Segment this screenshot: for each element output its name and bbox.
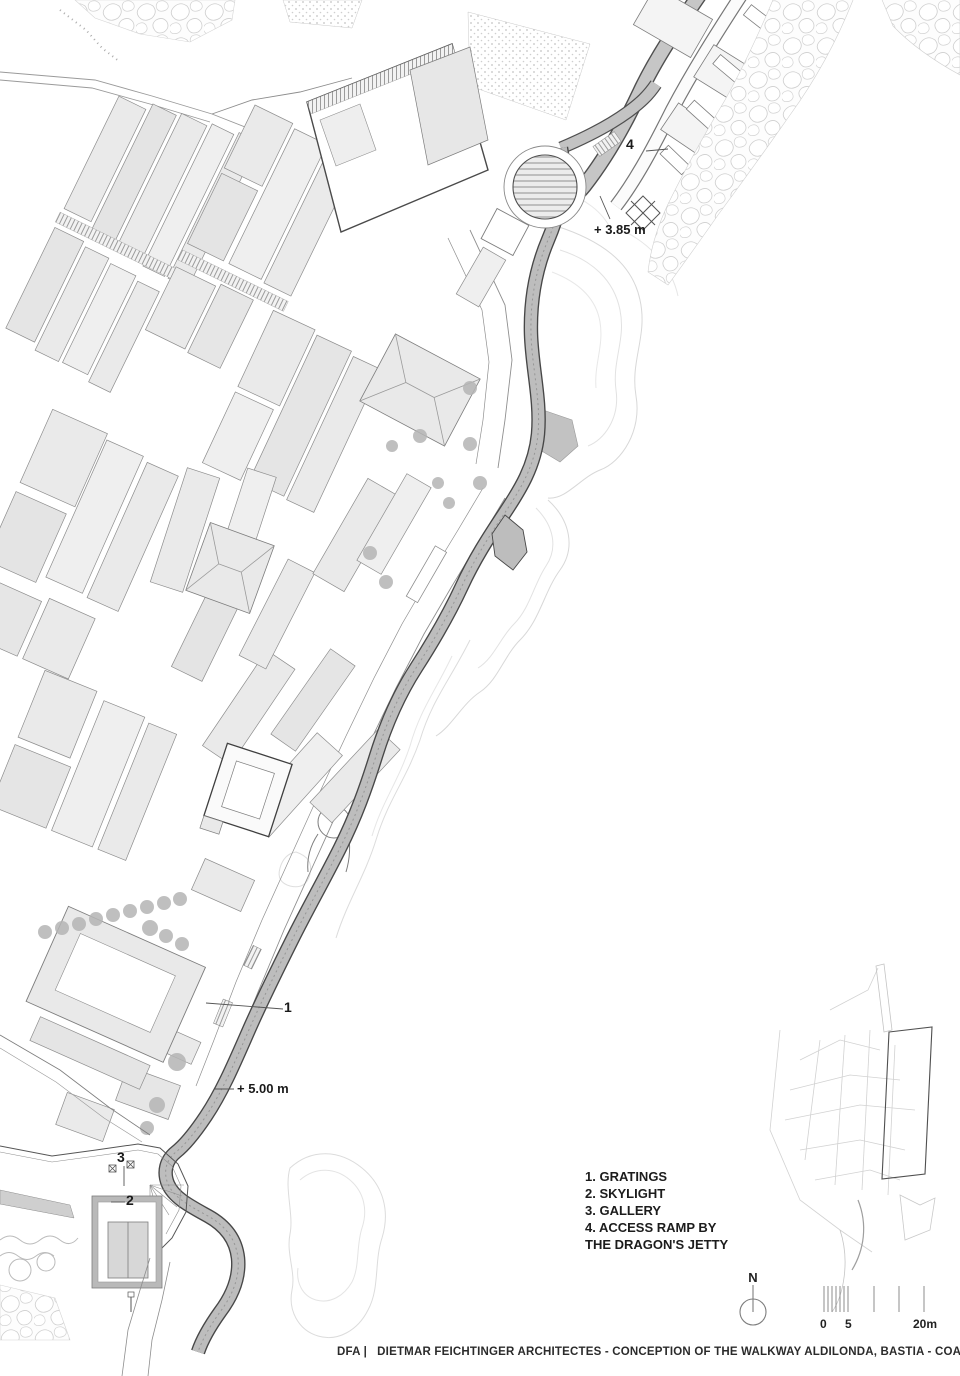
legend-item-access-ramp: 4. ACCESS RAMP BY THE DRAGON'S JETTY (585, 1219, 743, 1253)
gravel-patch-top (283, 0, 362, 28)
scale-label-20m: 20m (913, 1317, 937, 1331)
compass: N (731, 1270, 775, 1285)
marker-2: 2 (126, 1192, 134, 1208)
rock-texture-topleft (75, 0, 235, 42)
fort-square (200, 743, 292, 849)
roundabout (504, 146, 586, 228)
scale-label-0: 0 (820, 1317, 827, 1331)
gravel-patch-center (468, 12, 590, 120)
legend-item-gratings: 1. GRATINGS (585, 1168, 743, 1185)
legend-item-gallery: 3. GALLERY (585, 1202, 743, 1219)
legend-item-skylight: 2. SKYLIGHT (585, 1185, 743, 1202)
north-label: N (731, 1270, 775, 1285)
elevation-jetty-label: + 3.85 m (594, 222, 646, 237)
titleblock-text: DFA | DIETMAR FEICHTINGER ARCHITECTES - … (337, 1346, 960, 1358)
marker-3: 3 (117, 1149, 125, 1165)
plan-sheet: 4 + 3.85 m 1 + 5.00 m 3 2 1. GRATINGS 2.… (0, 0, 960, 1376)
site-plan-drawing (0, 0, 960, 1376)
north-arrow (740, 1285, 766, 1325)
grating-patch (213, 999, 232, 1027)
marker-4: 4 (626, 136, 634, 152)
scale-label-5: 5 (845, 1317, 852, 1331)
overview-inset-map (770, 964, 935, 1312)
plaza-complex (307, 44, 488, 232)
median-island (406, 546, 446, 603)
legend: 1. GRATINGS 2. SKYLIGHT 3. GALLERY 4. AC… (585, 1168, 743, 1253)
marker-1: 1 (284, 999, 292, 1015)
elevation-walkway-label: + 5.00 m (237, 1081, 289, 1096)
bastion-garden (0, 1236, 78, 1340)
